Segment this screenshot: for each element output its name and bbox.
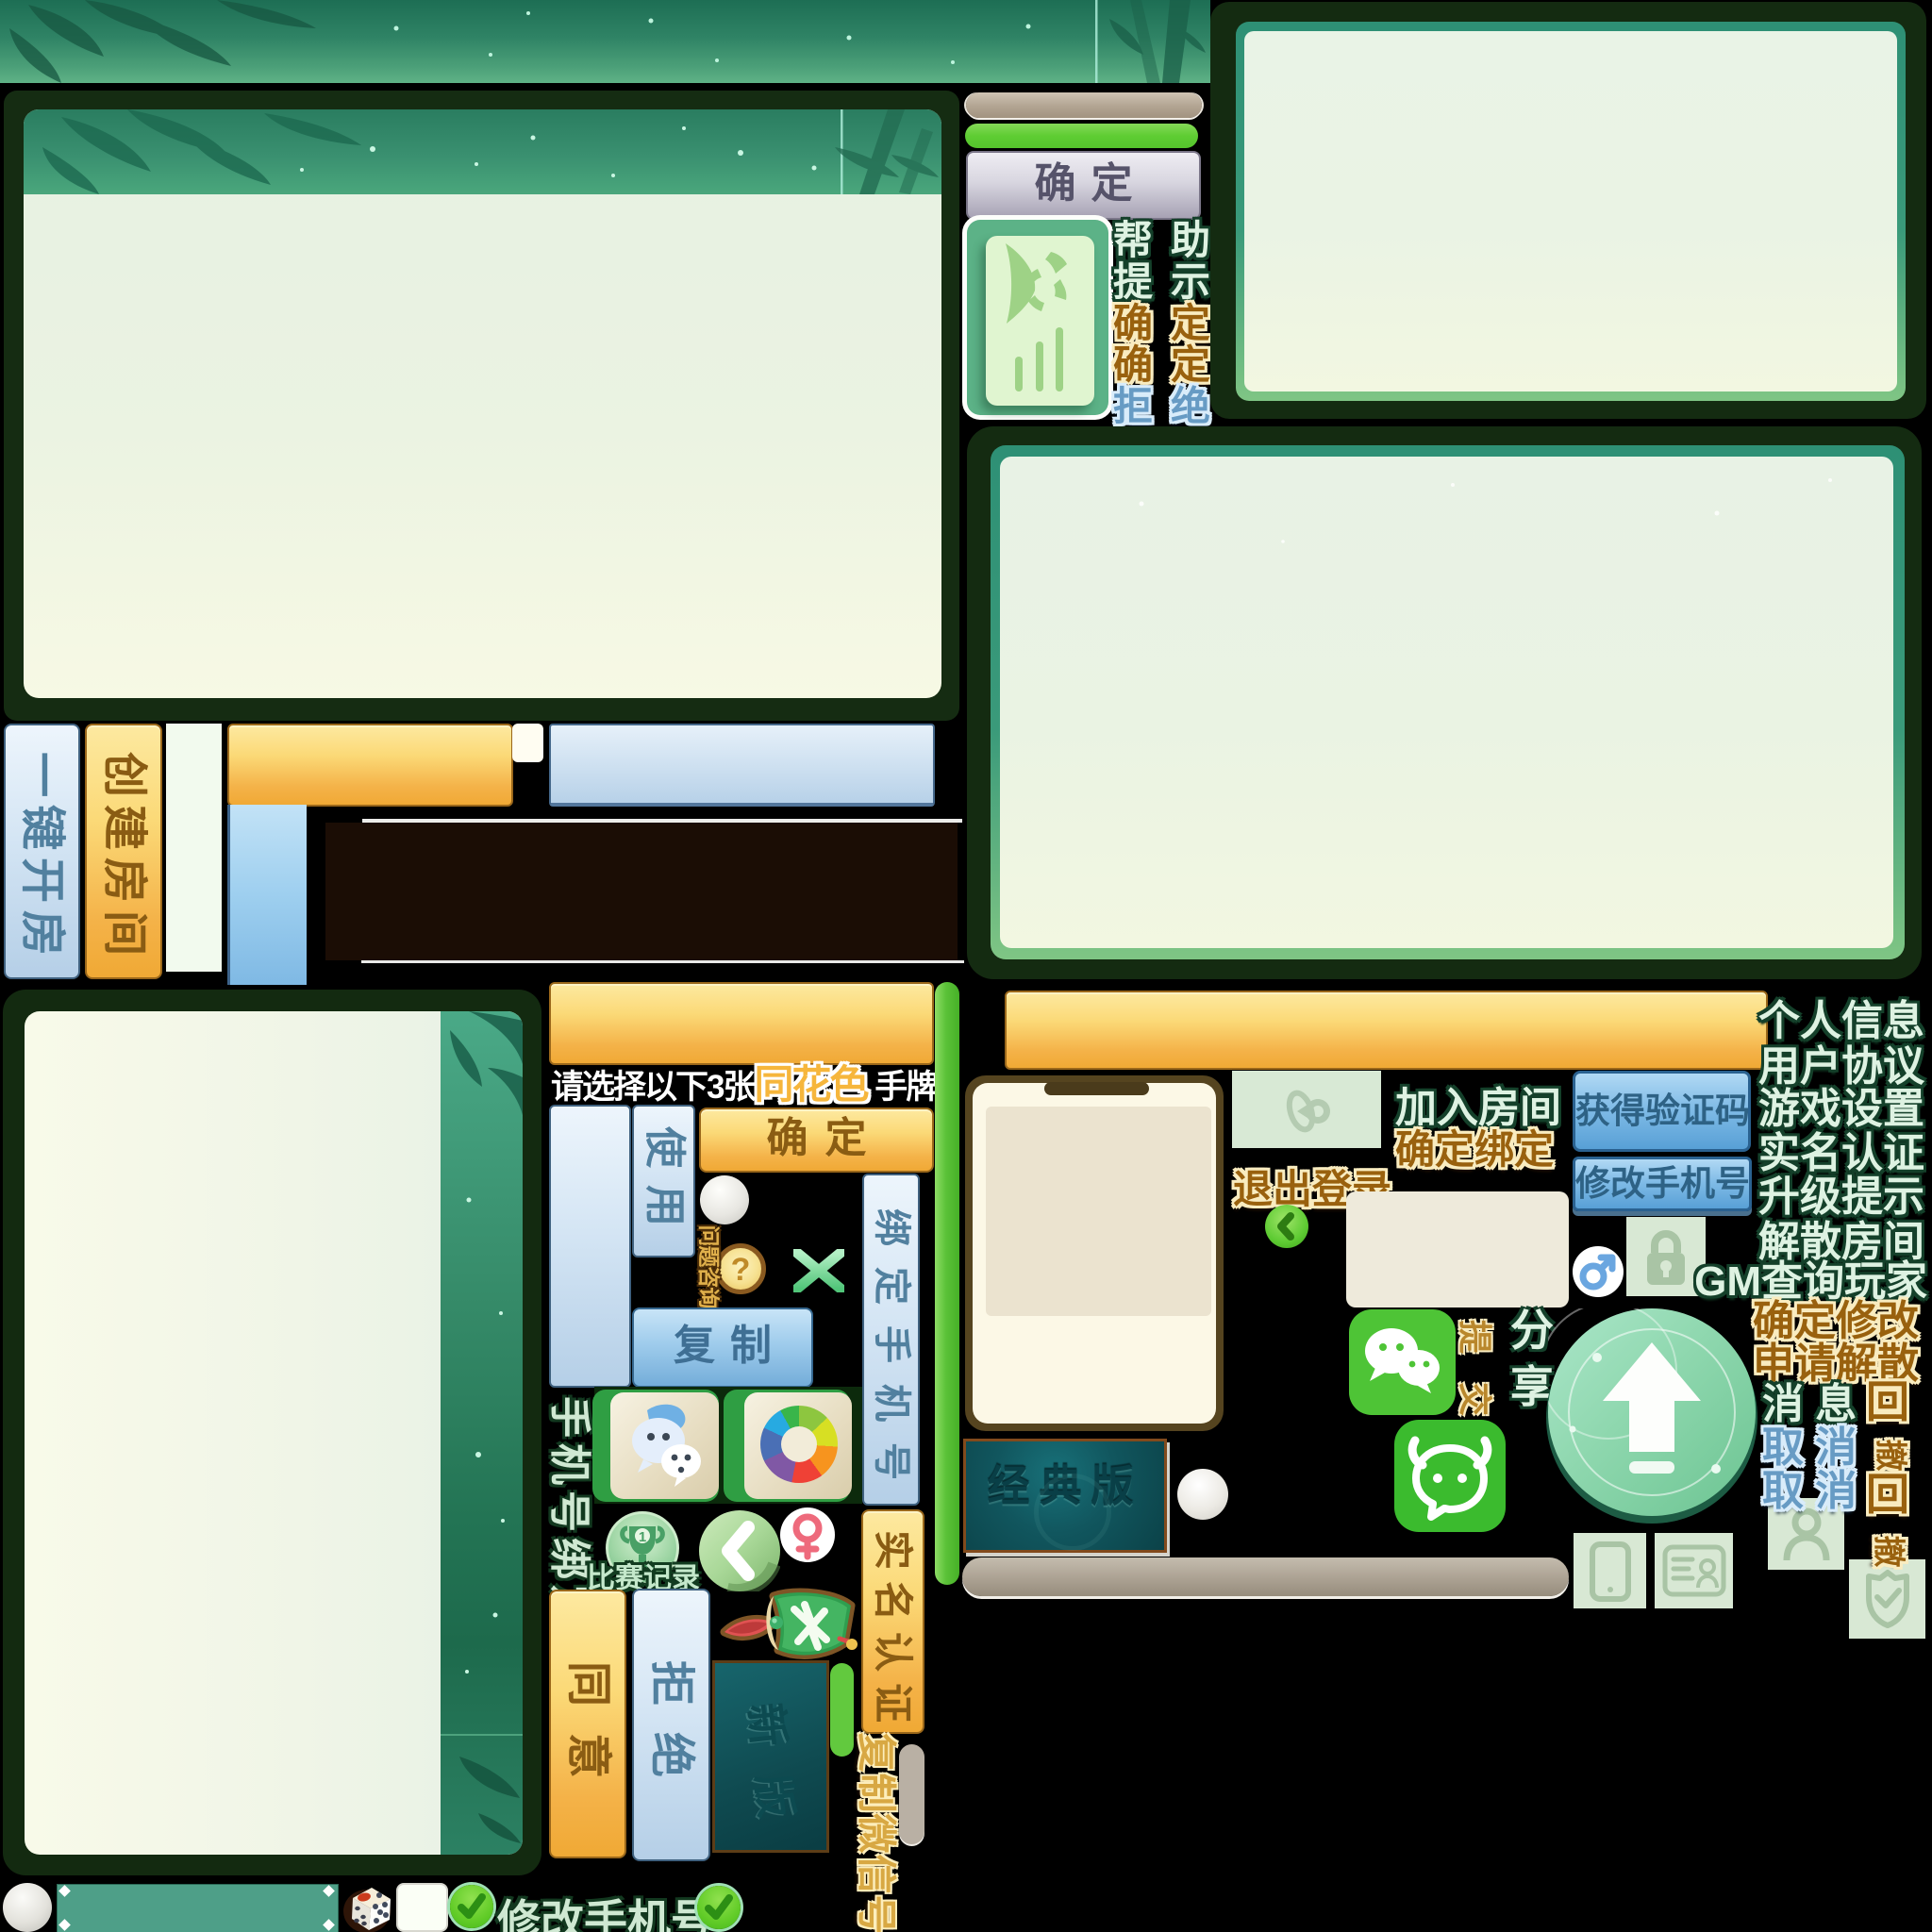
svg-text:1: 1 (639, 1529, 646, 1545)
